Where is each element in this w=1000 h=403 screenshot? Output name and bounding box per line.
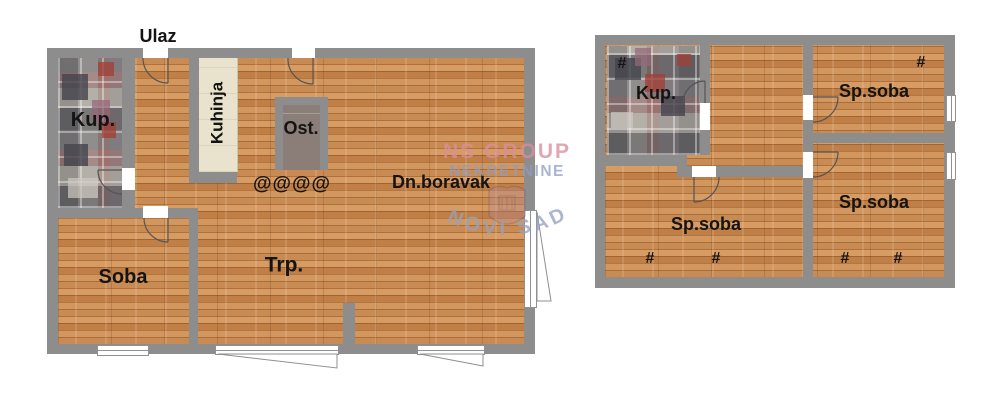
- label-hash: #: [894, 251, 903, 267]
- label-bathroom-upper: Kup.: [636, 84, 676, 102]
- wall: [343, 303, 355, 344]
- door-opening-entrance: [143, 44, 168, 58]
- wall: [813, 133, 944, 143]
- tile: [611, 112, 633, 128]
- tile: [64, 144, 88, 166]
- ground-bathroom-tiles: [58, 58, 122, 208]
- wall: [524, 48, 535, 354]
- door-opening-room: [143, 206, 168, 218]
- pantry-wall: [320, 97, 328, 170]
- label-bedroom-tr: Sp.soba: [839, 82, 909, 100]
- label-kitchen: Kuhinja: [209, 82, 226, 144]
- window-leaf-dining: [218, 354, 337, 368]
- window-bedroom-br: [946, 152, 956, 180]
- label-dining: Trp.: [265, 255, 304, 276]
- door-opening-living: [292, 44, 315, 58]
- tile: [635, 48, 651, 66]
- label-pantry: Ost.: [283, 119, 318, 137]
- label-room: Soba: [99, 267, 148, 287]
- window-leaf-living: [420, 354, 483, 366]
- window-room: [97, 345, 149, 356]
- wall: [595, 277, 955, 288]
- window-dining: [215, 345, 339, 355]
- window-living: [417, 345, 485, 355]
- floorplan-canvas: Ulaz Kup. Kuhinja Ost. @@@@ Dn.boravak T…: [0, 0, 1000, 403]
- door-opening-bedroom-tr: [803, 95, 813, 120]
- label-stairs-mark: @@@@: [253, 175, 331, 194]
- door-opening-bedroom-bl: [692, 166, 716, 177]
- wall: [189, 172, 237, 183]
- tile: [62, 74, 88, 100]
- pantry-wall: [275, 97, 283, 170]
- label-hash: #: [618, 56, 627, 72]
- wall: [595, 35, 955, 45]
- window-bedroom-tr: [946, 95, 956, 122]
- wall: [700, 45, 710, 155]
- tile: [98, 62, 114, 76]
- label-hash: #: [841, 251, 850, 267]
- wall: [47, 208, 198, 218]
- label-bedroom-br: Sp.soba: [839, 193, 909, 211]
- wall: [189, 208, 198, 354]
- wall: [189, 58, 199, 183]
- wall: [47, 48, 58, 354]
- balcony-door-leaf: [537, 212, 551, 301]
- label-living-room: Dn.boravak: [392, 173, 490, 191]
- label-hash: #: [917, 55, 926, 71]
- label-hash: #: [646, 251, 655, 267]
- tile: [68, 178, 98, 198]
- door-opening-bathroom: [122, 168, 135, 190]
- tile: [677, 54, 691, 66]
- label-entrance: Ulaz: [139, 27, 176, 45]
- label-bedroom-bl: Sp.soba: [671, 215, 741, 233]
- door-opening-bathroom-upper: [700, 103, 710, 130]
- wall: [595, 155, 687, 166]
- label-bathroom: Kup.: [71, 110, 115, 130]
- label-hash: #: [712, 251, 721, 267]
- door-opening-bedroom-br: [803, 152, 813, 178]
- balcony-door: [524, 210, 537, 308]
- wall: [47, 48, 535, 58]
